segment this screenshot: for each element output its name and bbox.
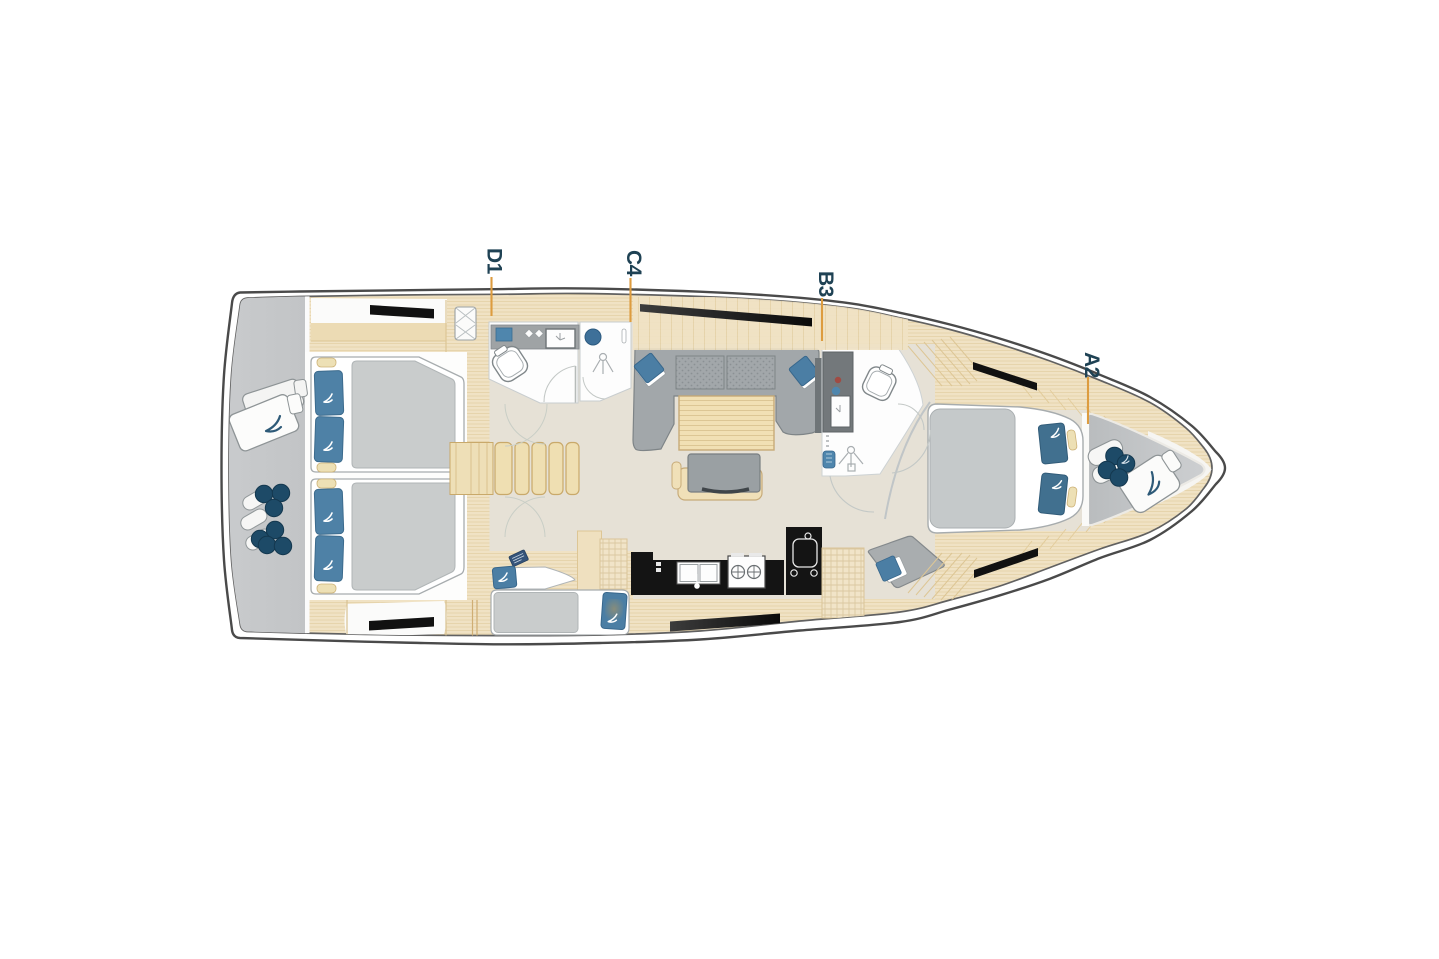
svg-text:A2: A2 <box>1080 352 1103 378</box>
svg-text:D1: D1 <box>483 248 506 275</box>
svg-text:B3: B3 <box>814 271 837 297</box>
svg-text:C4: C4 <box>622 250 645 277</box>
